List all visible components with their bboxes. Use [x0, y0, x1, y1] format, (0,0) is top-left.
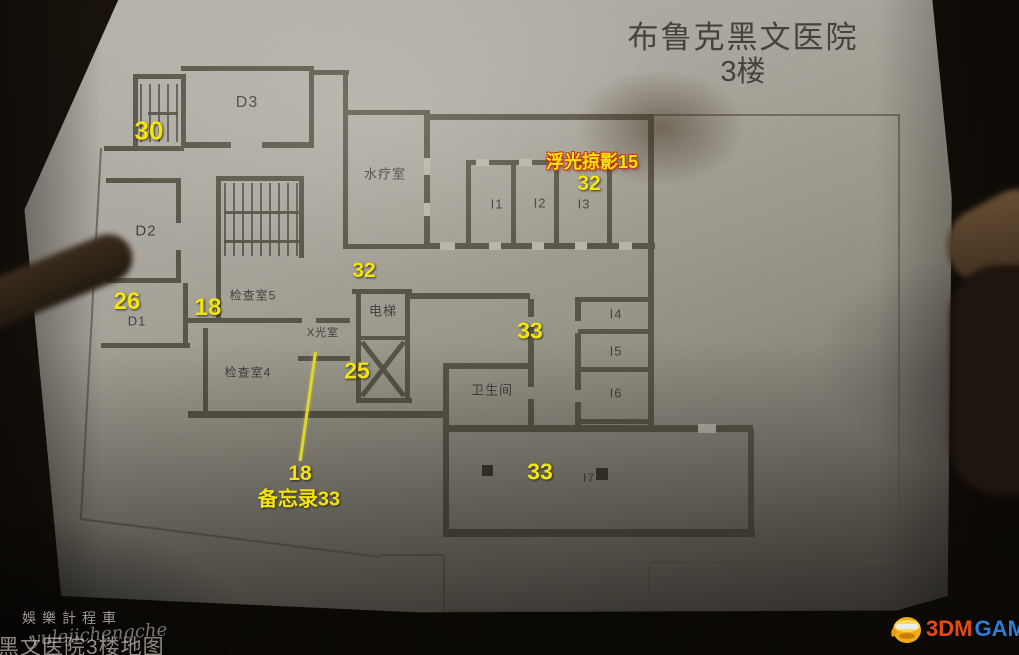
- wall-segment: [309, 66, 314, 148]
- marker-33-bottom: 33: [527, 459, 553, 486]
- wall-segment: [408, 293, 530, 299]
- room-label-i2: I2: [534, 196, 547, 211]
- boundary-line: [898, 116, 900, 566]
- wall-segment: [405, 289, 410, 401]
- room-label-d2: D2: [135, 223, 156, 240]
- wall-segment: [181, 66, 314, 71]
- screenshot-scene: D3D2D1水疗室I1I2I3检查室5X光室电梯卫生间I4I5I6I7检查室4 …: [0, 0, 1019, 655]
- marker-25: 25: [344, 358, 370, 385]
- 3dmgame-mascot-icon: [888, 612, 924, 646]
- wall-segment: [578, 297, 650, 302]
- boundary-line: [648, 562, 650, 612]
- wall-segment: [343, 110, 430, 115]
- marker-33-mid: 33: [517, 318, 543, 345]
- wall-segment: [183, 283, 188, 345]
- marker-32-left: 32: [352, 259, 375, 283]
- room-label-xray: X光室: [307, 324, 339, 340]
- wall-segment: [262, 142, 314, 148]
- wall-segment: [578, 329, 650, 334]
- map-title: 布鲁克黑文医院 3楼: [612, 20, 874, 89]
- wall-segment: [578, 419, 650, 424]
- door-gap: [698, 424, 716, 433]
- wall-segment: [648, 114, 654, 426]
- wall-segment: [104, 146, 184, 151]
- 3dmgame-logo: 3DM GAME: [888, 612, 1019, 646]
- wall-segment: [298, 356, 350, 361]
- room-label-restroom: 卫生间: [471, 380, 513, 399]
- marker-memo-33: 备忘录33: [258, 483, 340, 512]
- right-hand: [950, 265, 1019, 495]
- door-gap: [619, 242, 632, 250]
- door-gap: [476, 159, 489, 166]
- wall-segment: [511, 165, 516, 248]
- wall-segment: [216, 176, 221, 258]
- wall-segment: [216, 176, 304, 181]
- room-label-elevator: 电梯: [369, 301, 397, 320]
- wall-segment: [443, 363, 449, 429]
- wall-segment: [443, 529, 755, 537]
- boundary-line: [443, 556, 445, 612]
- stairs-hatch: [224, 183, 300, 256]
- wall-segment: [352, 289, 412, 294]
- pillar: [596, 468, 608, 480]
- boundary-line: [380, 554, 444, 556]
- door-gap: [532, 242, 544, 250]
- wall-segment: [554, 165, 559, 248]
- wall-segment: [528, 299, 534, 317]
- marker-30: 30: [135, 116, 164, 147]
- map-title-floor: 3楼: [612, 56, 874, 89]
- wall-segment: [466, 160, 471, 248]
- wall-segment: [133, 74, 186, 79]
- wall-segment: [101, 343, 190, 348]
- wall-segment: [356, 336, 408, 340]
- map-title-hospital: 布鲁克黑文医院: [612, 20, 874, 56]
- wall-segment: [106, 178, 180, 183]
- room-label-i5: I5: [610, 344, 623, 359]
- wall-segment: [203, 328, 208, 416]
- wall-segment: [343, 70, 348, 114]
- paper-map: D3D2D1水疗室I1I2I3检查室5X光室电梯卫生间I4I5I6I7检查室4 …: [0, 0, 1019, 655]
- wall-segment: [424, 175, 430, 203]
- boundary-line: [80, 148, 102, 519]
- door-gap: [489, 242, 501, 250]
- wall-segment: [748, 429, 754, 535]
- room-label-hydrotherapy: 水疗室: [364, 164, 406, 183]
- marker-26: 26: [114, 288, 141, 316]
- room-label-i3: I3: [578, 197, 591, 212]
- wall-segment: [578, 367, 650, 372]
- boundary-line: [443, 610, 650, 612]
- room-label-i4: I4: [610, 307, 623, 322]
- door-gap: [519, 159, 532, 166]
- boundary-line: [80, 518, 380, 558]
- room-label-i7: I7: [583, 471, 595, 485]
- boundary-line: [650, 561, 900, 563]
- wall-segment: [181, 142, 231, 148]
- wall-segment: [188, 411, 446, 418]
- marker-18-left: 18: [195, 294, 222, 322]
- room-label-exam4: 检查室4: [225, 364, 272, 381]
- wall-segment: [356, 398, 412, 403]
- marker-photo-15: 浮光掠影15: [546, 148, 638, 174]
- wall-segment: [443, 363, 531, 369]
- door-gap: [424, 203, 430, 216]
- wall-segment: [443, 425, 449, 537]
- wall-segment: [343, 244, 429, 249]
- wall-segment: [343, 110, 348, 249]
- marker-32-right: 32: [577, 172, 600, 196]
- wall-segment: [316, 318, 350, 323]
- room-label-i6: I6: [610, 386, 623, 401]
- door-gap: [575, 242, 587, 250]
- room-label-exam5: 检查室5: [230, 287, 277, 304]
- logo-text-game: GAME: [974, 616, 1019, 642]
- wall-segment: [176, 178, 181, 223]
- room-label-i1: I1: [491, 197, 504, 212]
- wall-segment: [428, 114, 654, 120]
- door-gap: [440, 242, 455, 250]
- boundary-line: [654, 114, 900, 116]
- room-label-d3: D3: [236, 94, 258, 112]
- logo-text-3dm: 3DM: [926, 616, 972, 642]
- pillar: [482, 465, 493, 476]
- door-gap: [424, 158, 430, 175]
- wall-segment: [575, 333, 581, 390]
